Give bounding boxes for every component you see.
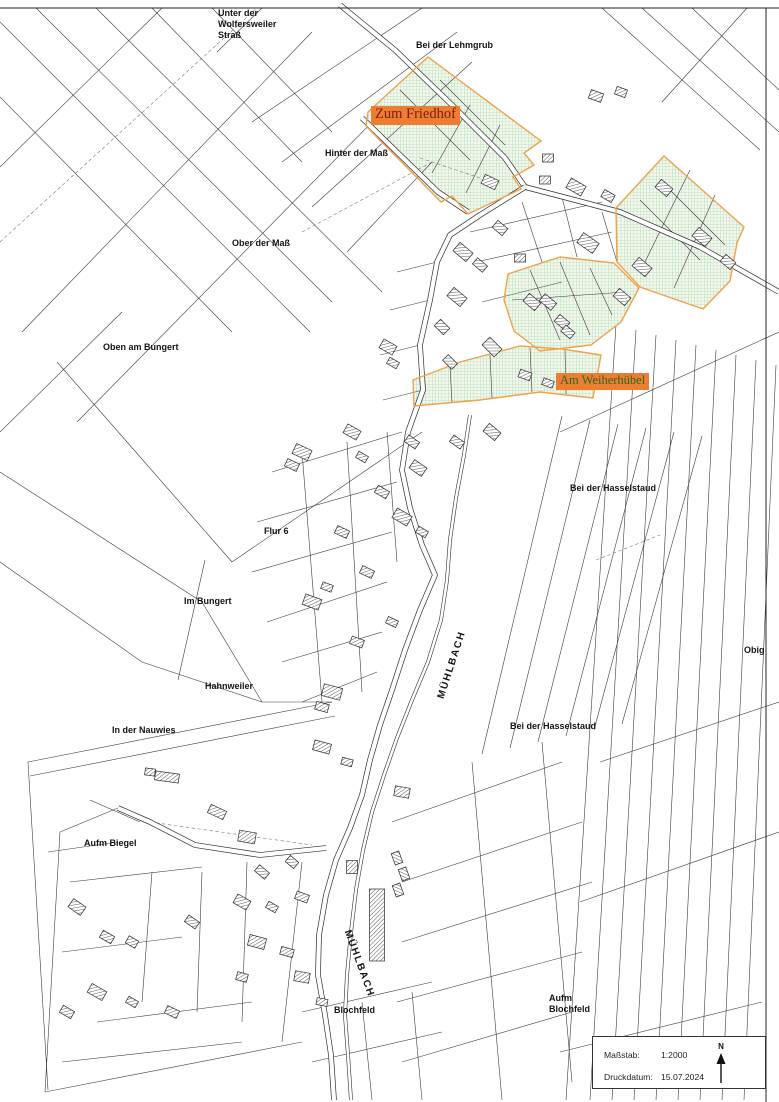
print-date-value: 15.07.2024	[661, 1072, 704, 1082]
legend-box: Maßstab: 1:2000 Druckdatum: 15.07.2024 N	[592, 1036, 766, 1089]
scale-value: 1:2000	[661, 1050, 687, 1060]
print-date-label: Druckdatum:	[604, 1072, 653, 1082]
north-indicator: N	[711, 1042, 731, 1087]
cadastral-map-page: Unter der Wolfersweiler Straß Bei der Le…	[0, 0, 779, 1102]
scale-label: Maßstab:	[604, 1050, 640, 1060]
north-arrow-icon	[711, 1051, 731, 1085]
north-label: N	[718, 1042, 724, 1051]
map-canvas[interactable]	[0, 0, 779, 1102]
